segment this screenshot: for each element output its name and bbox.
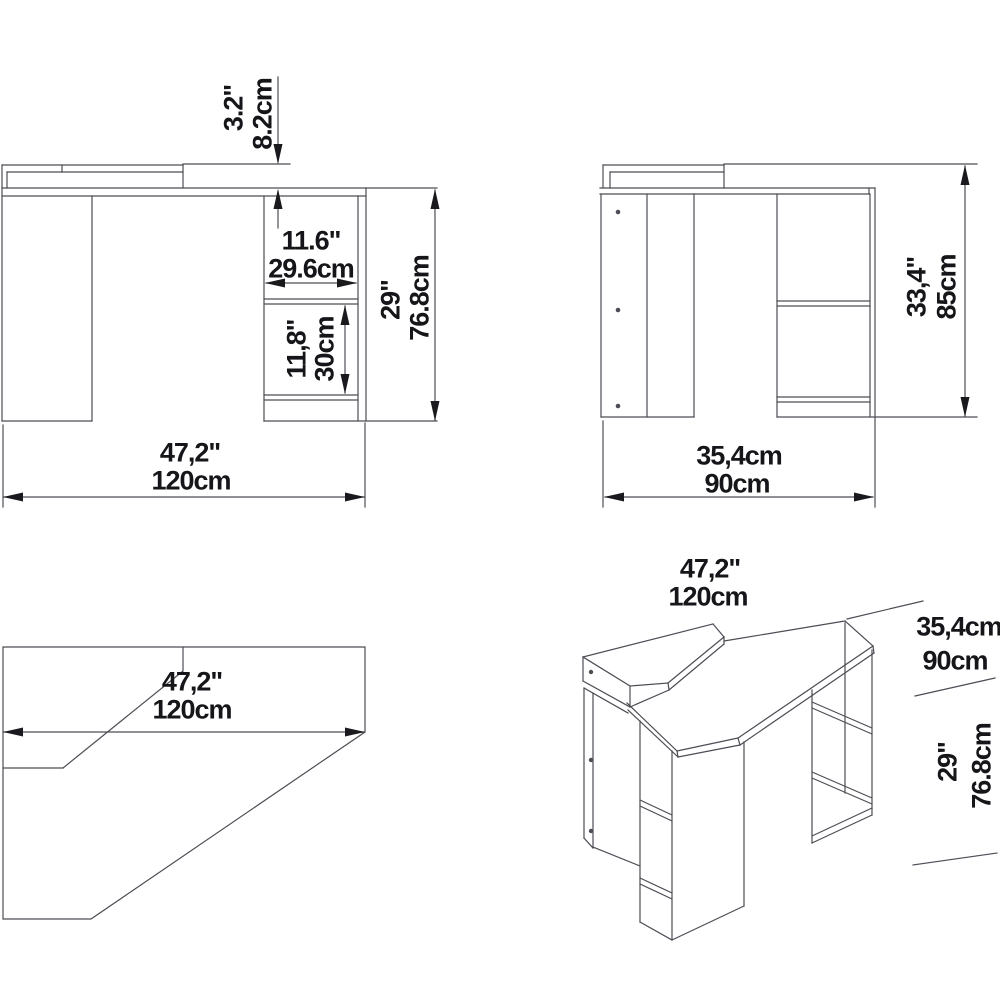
side-depth-label-top: 35,4cm xyxy=(696,440,782,470)
iso-overall-width-label: 47,2" 120cm xyxy=(668,553,747,611)
iso-overall-width-in: 47,2" xyxy=(680,553,741,583)
front-overall-width-in: 47,2" xyxy=(160,437,221,467)
iso-depth-label-bottom: 90cm xyxy=(922,645,987,675)
side-elevation-view: 33,4" 85cm 35,4cm 90cm xyxy=(600,164,977,507)
cam-hole xyxy=(589,758,593,762)
arrow-right-icon xyxy=(345,493,365,502)
arrow-down-icon xyxy=(431,401,440,421)
side-overall-height-dimension: 33,4" 85cm xyxy=(901,165,969,417)
arrow-up-icon xyxy=(961,165,970,185)
front-overall-height-cm: 76.8cm xyxy=(404,255,434,341)
arrow-up-icon xyxy=(341,305,350,325)
side-overall-height-in: 33,4" xyxy=(901,257,931,318)
arrow-left-icon xyxy=(3,728,23,737)
iso-overall-height-label: 29" 76.8cm xyxy=(932,723,996,809)
cam-hole xyxy=(589,670,593,674)
front-riser-height-in: 3.2" xyxy=(218,85,248,132)
top-overall-width-cm: 120cm xyxy=(152,694,231,724)
front-overall-height-dimension: 29" 76.8cm xyxy=(375,189,439,421)
iso-overall-width-cm: 120cm xyxy=(668,581,747,611)
cam-hole xyxy=(616,308,621,313)
iso-depth-label-top: 35,4cm xyxy=(916,611,1000,641)
front-compartment-height-in: 11,8" xyxy=(281,319,311,378)
arrow-down-icon xyxy=(341,374,350,394)
arrow-right-icon xyxy=(345,728,365,737)
isometric-view: 47,2" 120cm 35,4cm 90cm 29" 76.8cm xyxy=(583,553,1000,940)
top-overall-width-dimension: 47,2" 120cm xyxy=(3,666,365,736)
front-overall-width-cm: 120cm xyxy=(151,465,230,495)
cam-hole xyxy=(616,210,621,215)
top-plan-view: 47,2" 120cm xyxy=(3,647,365,919)
iso-depth-label: 35,4cm 90cm xyxy=(916,611,1000,675)
front-compartment-height-dimension: 11,8" 30cm xyxy=(281,305,349,394)
cam-hole xyxy=(589,829,593,833)
arrow-down-icon xyxy=(961,397,970,417)
front-elevation-view: 3.2" 8.2cm 11.6" 29.6cm 11,8" 30cm 29" 7… xyxy=(2,77,440,507)
arrow-up-icon xyxy=(274,189,283,209)
top-overall-width-in: 47,2" xyxy=(162,666,223,696)
front-overall-height-in: 29" xyxy=(375,280,405,320)
front-compartment-width-dimension: 11.6" 29.6cm xyxy=(265,225,357,287)
front-compartment-width-cm: 29.6cm xyxy=(268,253,354,283)
front-riser-height-dimension: 3.2" 8.2cm xyxy=(218,77,282,228)
cam-hole xyxy=(616,404,621,409)
iso-overall-height-cm: 76.8cm xyxy=(966,723,996,809)
corner-desk-drawing: 3.2" 8.2cm 11.6" 29.6cm 11,8" 30cm 29" 7… xyxy=(0,0,1000,1000)
technical-drawing-sheet: 3.2" 8.2cm 11.6" 29.6cm 11,8" 30cm 29" 7… xyxy=(0,0,1000,1000)
front-riser-height-cm: 8.2cm xyxy=(247,78,277,150)
side-depth-dimension: 35,4cm 90cm xyxy=(604,440,874,501)
front-compartment-height-cm: 30cm xyxy=(309,316,339,381)
front-compartment-width-in: 11.6" xyxy=(282,225,341,255)
iso-overall-height-in: 29" xyxy=(932,742,962,782)
arrow-left-icon xyxy=(3,493,23,502)
arrow-right-icon xyxy=(854,493,874,502)
arrow-left-icon xyxy=(604,493,624,502)
arrow-up-icon xyxy=(431,189,440,209)
front-overall-width-dimension: 47,2" 120cm xyxy=(3,437,365,501)
side-depth-label-bottom: 90cm xyxy=(704,468,769,498)
side-overall-height-cm: 85cm xyxy=(931,254,961,319)
